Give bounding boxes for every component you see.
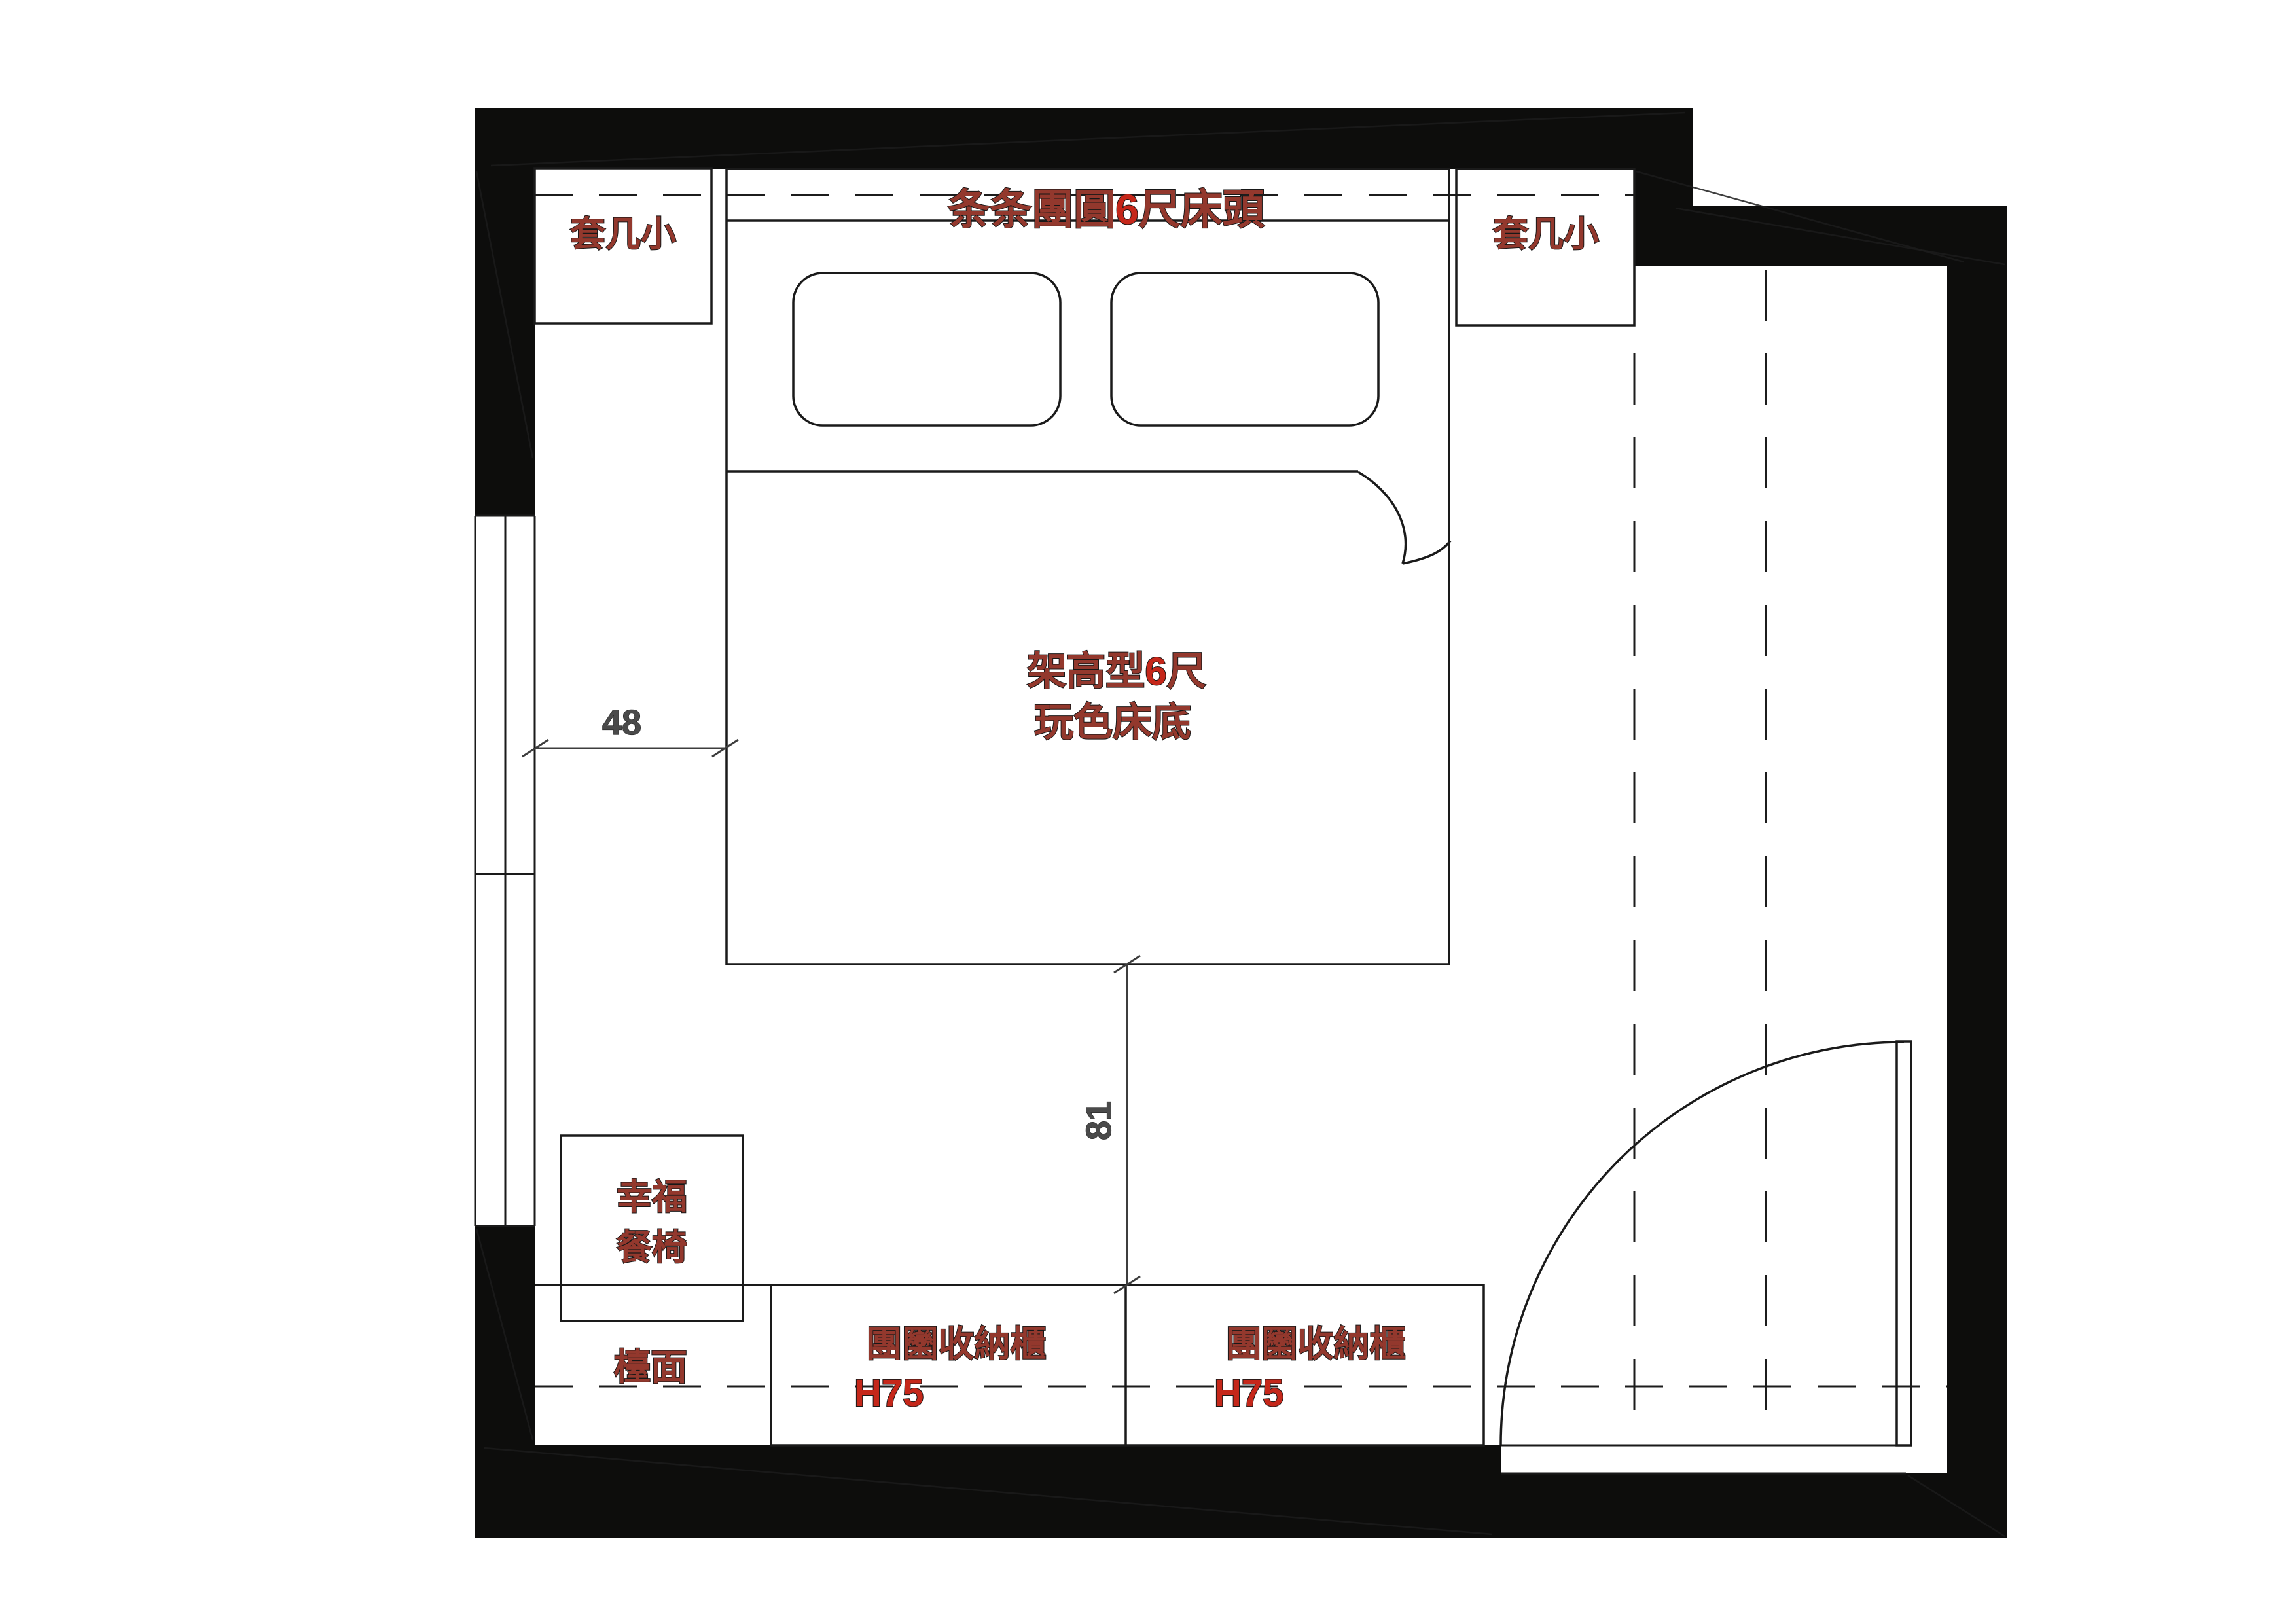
svg-text:團圞收納櫃: 團圞收納櫃 <box>866 1324 1046 1364</box>
wall-topright-bar <box>1634 206 2007 266</box>
door-swing-arc <box>1501 1042 1904 1445</box>
svg-text:H75: H75 <box>1214 1372 1283 1415</box>
bed-outline <box>726 169 1449 964</box>
svg-text:玩色床底: 玩色床底 <box>1034 700 1191 744</box>
counter-label: 檯面 <box>614 1346 687 1388</box>
blanket-fold-outer <box>1403 541 1450 564</box>
svg-text:團圞收納櫃: 團圞收納櫃 <box>1225 1324 1405 1364</box>
bed <box>726 169 1450 964</box>
svg-text:架高型6尺: 架高型6尺 <box>1027 649 1206 693</box>
door <box>1501 1041 1911 1473</box>
pillow-right <box>1111 273 1378 425</box>
pillow-left <box>793 273 1060 425</box>
chair-label: 幸福 餐椅 <box>617 1178 687 1267</box>
headboard-label: 条条團圓6尺床頭 <box>948 186 1265 233</box>
svg-text:H75: H75 <box>854 1372 924 1415</box>
wall-column-topright <box>1634 169 1693 206</box>
window-left <box>475 516 535 1226</box>
svg-text:餐椅: 餐椅 <box>617 1228 687 1267</box>
reference-lines <box>535 195 1947 1443</box>
bed-label: 架高型6尺 玩色床底 <box>1027 649 1206 744</box>
svg-text:幸福: 幸福 <box>617 1178 687 1217</box>
cabinet-row <box>771 1285 1484 1445</box>
cabinet-right-label: 團圞收納櫃 H75 <box>1214 1324 1406 1415</box>
dimension-48: 48 <box>522 703 738 757</box>
wall-door-sill-strip <box>1501 1473 2007 1538</box>
blanket-fold-inner <box>1358 472 1406 564</box>
floor-plan-drawing: 48 81 条条團圓6尺床頭 套几小 套几小 架高型6尺 玩色床底 幸福 餐椅 … <box>0 0 2296 1624</box>
nightstand-right-label: 套几小 <box>1493 215 1599 254</box>
floor-plan: 48 81 条条團圓6尺床頭 套几小 套几小 架高型6尺 玩色床底 幸福 餐椅 … <box>0 0 2296 1624</box>
dim-48-label: 48 <box>602 703 641 742</box>
dim-81-label: 81 <box>1079 1101 1119 1140</box>
wall-top <box>475 108 1693 169</box>
nightstand-left-label: 套几小 <box>570 215 676 254</box>
cabinet-left-label: 團圞收納櫃 H75 <box>854 1324 1047 1415</box>
wall-right <box>1947 266 2007 1473</box>
wall-left-upper <box>475 108 535 516</box>
door-leaf <box>1897 1041 1911 1445</box>
dimension-81: 81 <box>1079 956 1140 1293</box>
